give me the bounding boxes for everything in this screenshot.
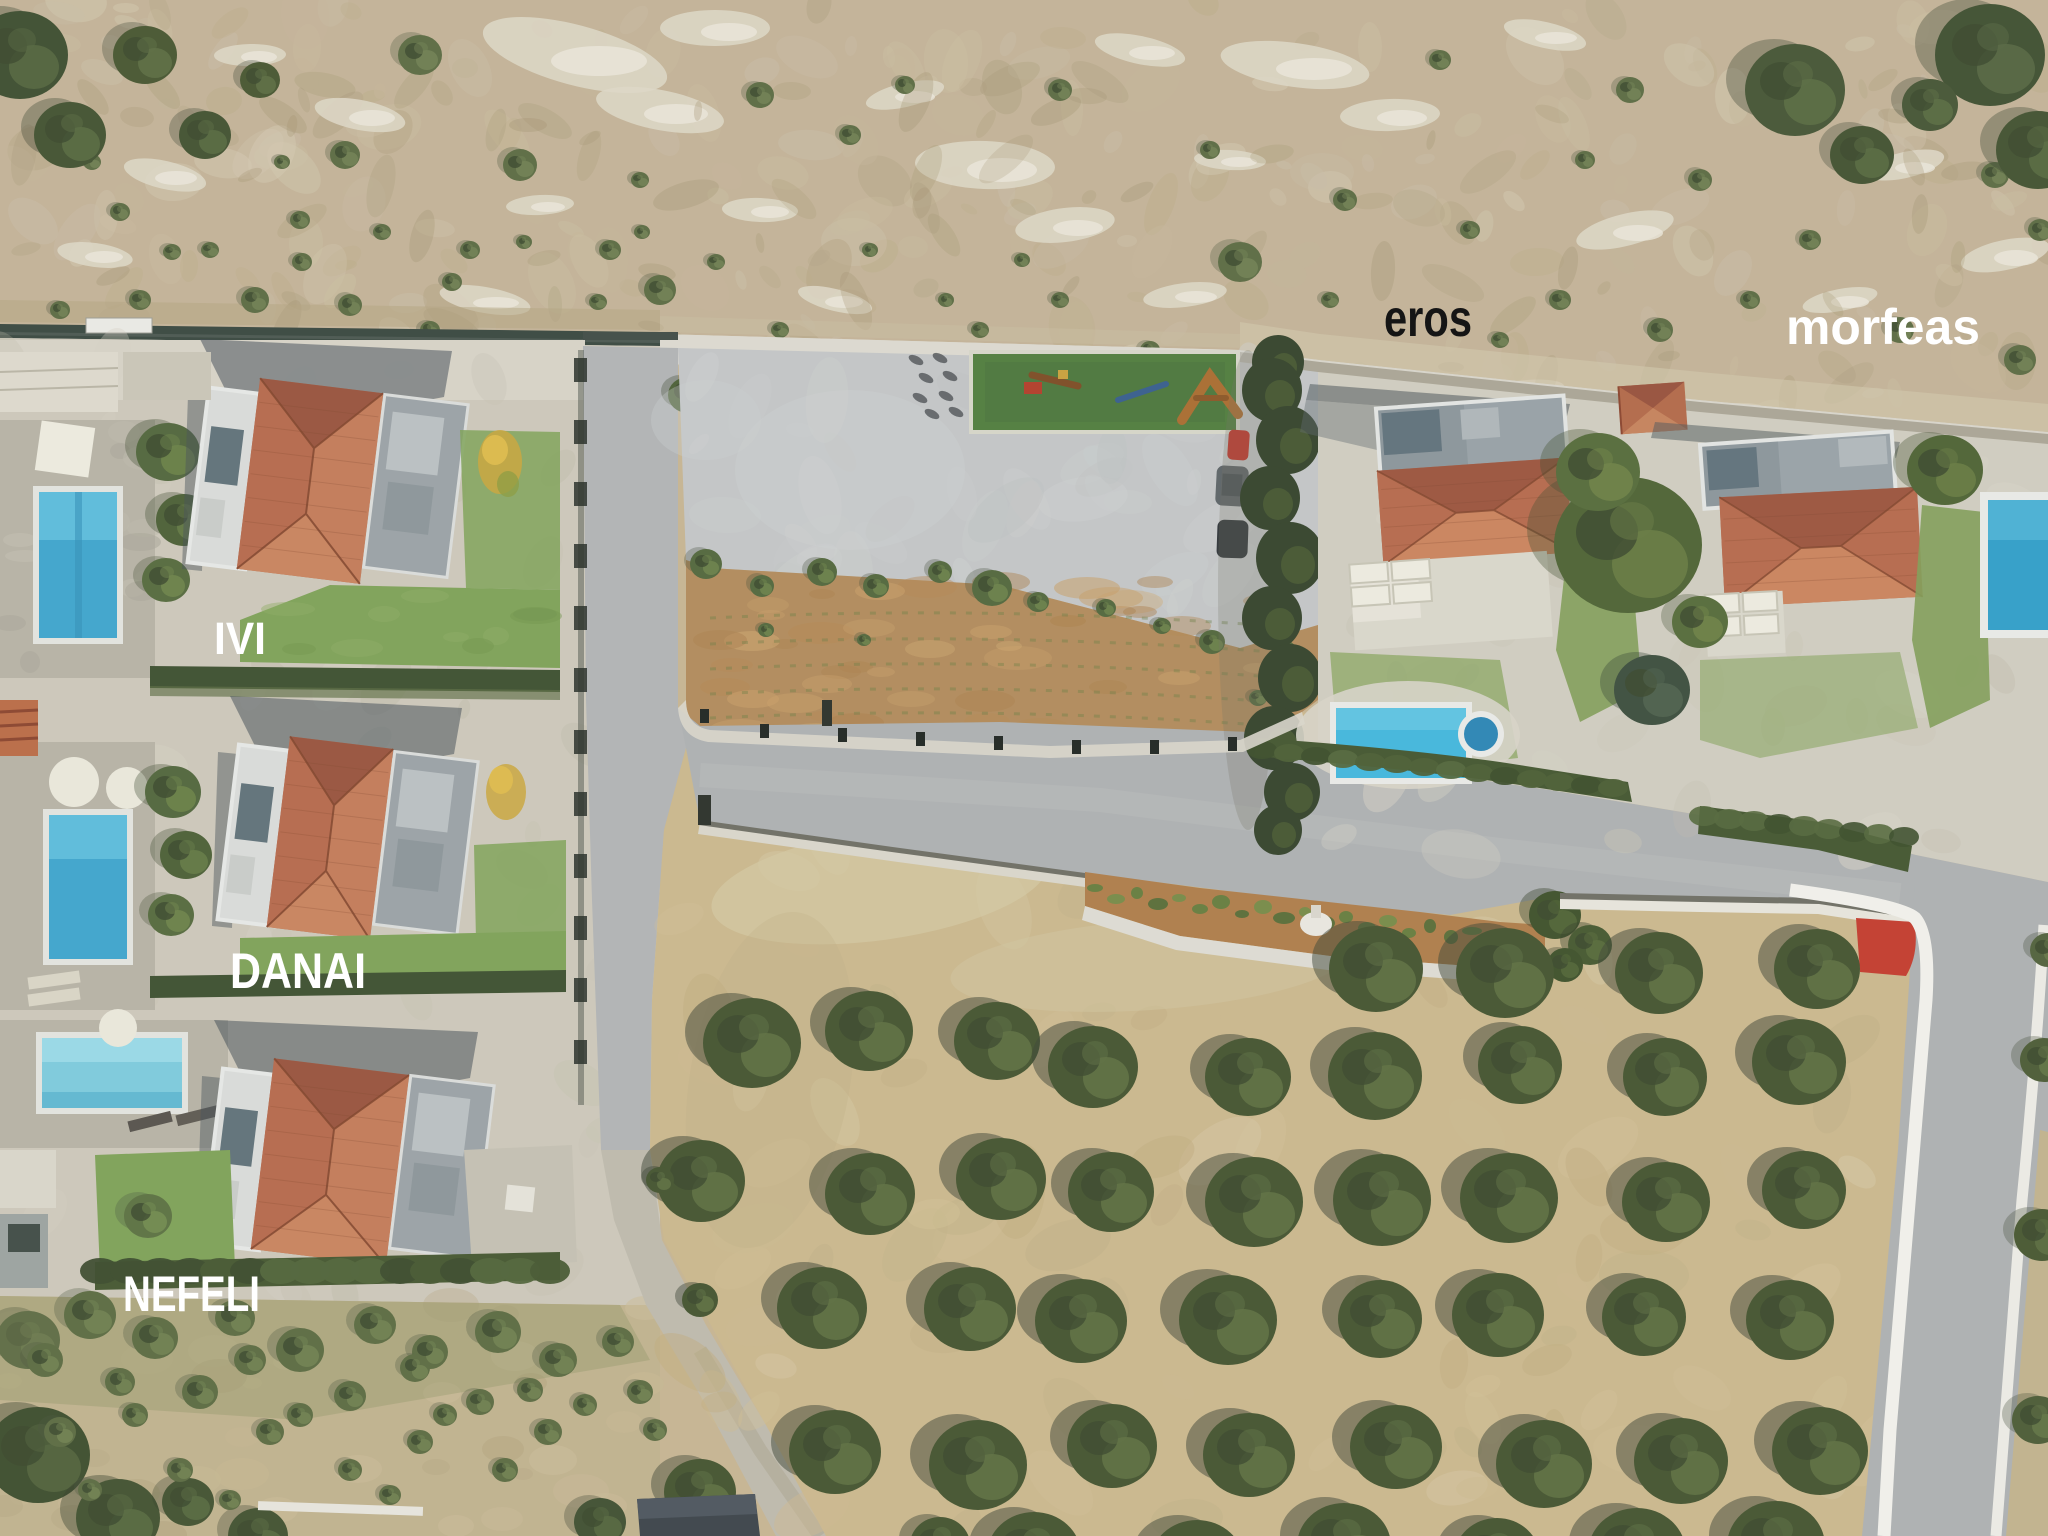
svg-text:IVI: IVI	[214, 613, 266, 664]
svg-text:morfeas: morfeas	[1786, 299, 1980, 355]
svg-text:DANAI: DANAI	[230, 943, 366, 999]
svg-text:eros: eros	[1384, 290, 1472, 348]
svg-text:NEFELI: NEFELI	[123, 1266, 260, 1322]
